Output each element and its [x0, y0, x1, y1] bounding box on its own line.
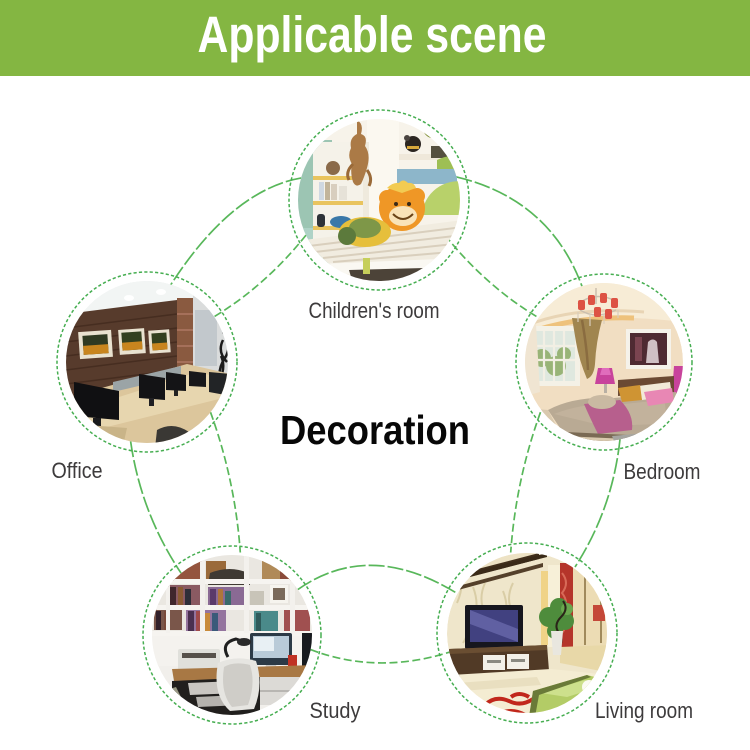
- svg-text:Living room: Living room: [595, 698, 693, 723]
- svg-text:Children's room: Children's room: [309, 298, 440, 323]
- svg-text:Bedroom: Bedroom: [624, 459, 701, 484]
- svg-text:Study: Study: [310, 698, 361, 723]
- svg-text:Office: Office: [52, 458, 103, 483]
- svg-text:Decoration: Decoration: [280, 407, 470, 453]
- svg-text:Applicable scene: Applicable scene: [198, 6, 547, 63]
